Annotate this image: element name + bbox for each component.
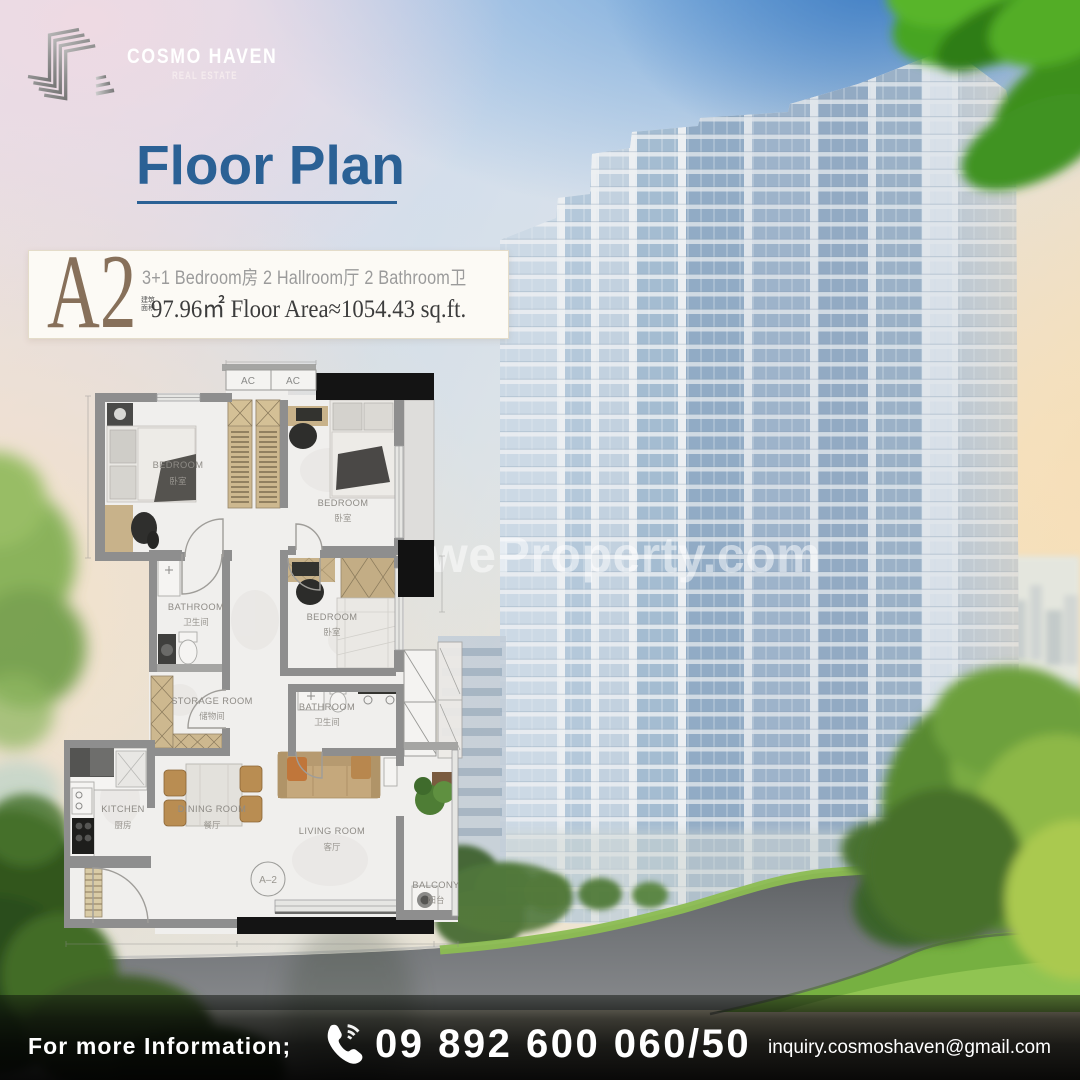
svg-text:客厅: 客厅	[323, 842, 341, 852]
svg-text:A–2: A–2	[259, 875, 277, 886]
svg-text:AC: AC	[286, 376, 300, 387]
svg-text:BEDROOM: BEDROOM	[318, 498, 369, 508]
svg-text:卧室: 卧室	[169, 476, 187, 486]
svg-text:卫生间: 卫生间	[183, 617, 209, 627]
svg-text:阳台: 阳台	[427, 895, 444, 905]
svg-text:BALCONY: BALCONY	[412, 880, 459, 890]
svg-text:BEDROOM: BEDROOM	[307, 612, 358, 622]
svg-text:STORAGE ROOM: STORAGE ROOM	[171, 696, 253, 706]
svg-text:KITCHEN: KITCHEN	[101, 804, 145, 814]
svg-text:BEDROOM: BEDROOM	[153, 460, 204, 470]
svg-text:LIVING ROOM: LIVING ROOM	[299, 826, 365, 836]
svg-text:卧室: 卧室	[334, 513, 352, 523]
svg-text:BATHROOM: BATHROOM	[299, 702, 355, 712]
svg-text:餐厅: 餐厅	[203, 820, 221, 830]
svg-text:AC: AC	[241, 376, 255, 387]
svg-text:BATHROOM: BATHROOM	[168, 602, 224, 612]
svg-text:卫生间: 卫生间	[314, 717, 340, 727]
svg-text:DINING ROOM: DINING ROOM	[178, 804, 246, 814]
svg-text:卧室: 卧室	[323, 627, 341, 637]
svg-text:厨房: 厨房	[114, 820, 131, 830]
svg-text:储物间: 储物间	[199, 711, 225, 721]
